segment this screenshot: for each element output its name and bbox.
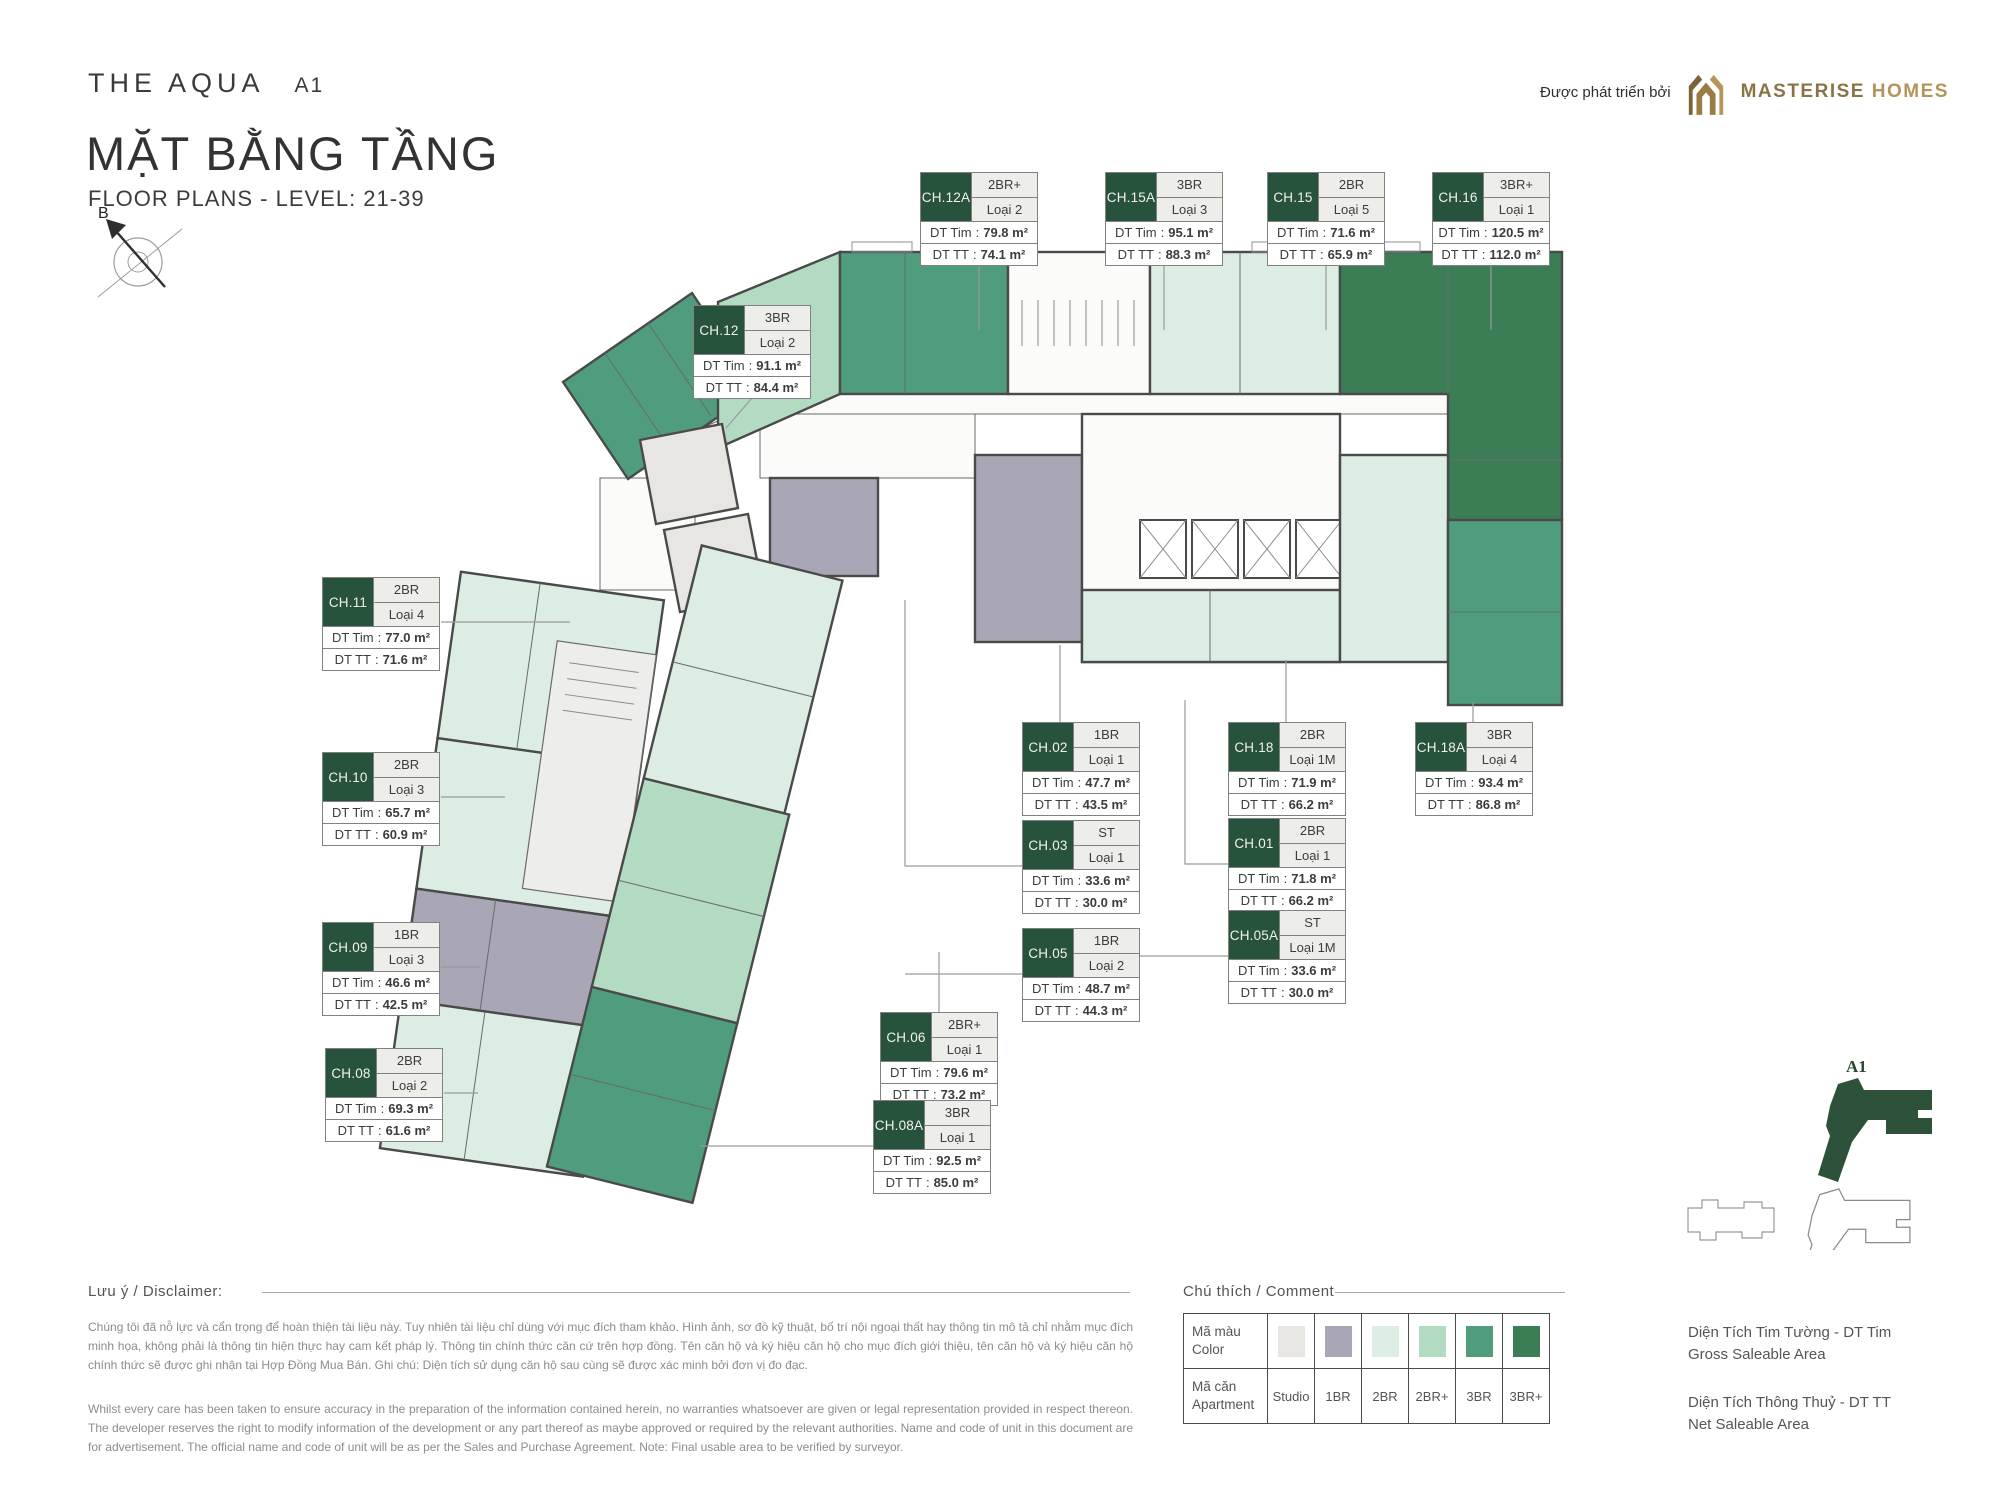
unit-variant: Loại 1 xyxy=(925,1126,990,1150)
unit-variant: Loại 2 xyxy=(1074,954,1139,978)
unit-dt-tim: 71.8 m² xyxy=(1291,871,1336,886)
unit-type: ST xyxy=(1280,911,1345,936)
dt-tim-label: DT Tim xyxy=(332,630,374,645)
key-plan-other-tower-shape xyxy=(1800,1189,1909,1250)
unit-code: CH.03 xyxy=(1023,821,1073,869)
unit-label-ch08a: CH.08A 3BR Loại 1 DT Tim:92.5 m² DT TT:8… xyxy=(873,1100,991,1194)
legend-type-1br: 1BR xyxy=(1315,1369,1362,1424)
unit-dt-tim: 92.5 m² xyxy=(936,1153,981,1168)
unit-dt-tt: 30.0 m² xyxy=(1289,985,1334,1000)
legend-swatch-3br xyxy=(1466,1326,1493,1357)
unit-dt-tim: 79.8 m² xyxy=(983,225,1028,240)
unit-variant: Loại 2 xyxy=(377,1074,442,1098)
plan-unit-ch03 xyxy=(640,424,738,524)
unit-type: 3BR xyxy=(1467,723,1532,748)
key-plan-neighbor-building xyxy=(1688,1200,1774,1240)
unit-label-ch03: CH.03 ST Loại 1 DT Tim:33.6 m² DT TT:30.… xyxy=(1022,820,1140,914)
unit-variant: Loại 1M xyxy=(1280,748,1345,772)
unit-dt-tim: 65.7 m² xyxy=(385,805,430,820)
unit-dt-tt: 66.2 m² xyxy=(1289,797,1334,812)
unit-variant: Loại 4 xyxy=(1467,748,1532,772)
plan-unit-ch01 xyxy=(1082,590,1340,662)
unit-type: 2BR xyxy=(1280,819,1345,844)
unit-variant: Loại 1 xyxy=(932,1038,997,1062)
plan-center-band xyxy=(640,414,1562,705)
plan-unit-ch02 xyxy=(975,455,1082,642)
key-plan-a1-label: A1 xyxy=(1846,1057,1867,1076)
project-name-line: THE AQUAA1 xyxy=(88,68,324,99)
legend-note-gross: Diện Tích Tim Tường - DT Tim Gross Salea… xyxy=(1688,1322,1978,1366)
unit-dt-tt: 71.6 m² xyxy=(383,652,428,667)
unit-dt-tim: 48.7 m² xyxy=(1085,981,1130,996)
unit-type: 2BR xyxy=(1280,723,1345,748)
dt-tim-label: DT Tim xyxy=(1032,873,1074,888)
unit-variant: Loại 2 xyxy=(972,198,1037,222)
dt-tim-label: DT Tim xyxy=(890,1065,932,1080)
unit-type: 2BR+ xyxy=(932,1013,997,1038)
unit-type: 2BR xyxy=(377,1049,442,1074)
unit-label-ch10: CH.10 2BR Loại 3 DT Tim:65.7 m² DT TT:60… xyxy=(322,752,440,846)
unit-code: CH.18A xyxy=(1416,723,1466,771)
unit-dt-tt: 66.2 m² xyxy=(1289,893,1334,908)
dt-tim-label: DT Tim xyxy=(1032,775,1074,790)
legend-swatch-3br-plus xyxy=(1513,1326,1540,1357)
unit-dt-tim: 77.0 m² xyxy=(385,630,430,645)
unit-type: 2BR xyxy=(374,578,439,603)
legend-type-studio: Studio xyxy=(1268,1369,1315,1424)
plan-unit-ch05a xyxy=(664,514,764,612)
dt-tim-label: DT Tim xyxy=(1277,225,1319,240)
unit-dt-tim: 120.5 m² xyxy=(1492,225,1544,240)
dt-tt-label: DT TT xyxy=(1241,797,1277,812)
unit-dt-tt: 86.8 m² xyxy=(1476,797,1521,812)
unit-dt-tim: 71.6 m² xyxy=(1330,225,1375,240)
unit-dt-tt: 61.6 m² xyxy=(386,1123,431,1138)
legend-apt-label-vi: Mã căn xyxy=(1192,1379,1236,1394)
unit-label-ch05a: CH.05A ST Loại 1M DT Tim:33.6 m² DT TT:3… xyxy=(1228,910,1346,1004)
legend-swatch-1br xyxy=(1325,1326,1352,1357)
legend-rule xyxy=(1335,1292,1565,1293)
dt-tim-label: DT Tim xyxy=(332,805,374,820)
compass-north-label: B xyxy=(98,205,109,223)
unit-dt-tim: 46.6 m² xyxy=(385,975,430,990)
dt-tt-label: DT TT xyxy=(1118,247,1154,262)
disclaimer-en: Whilst every care has been taken to ensu… xyxy=(88,1400,1133,1458)
unit-dt-tim: 79.6 m² xyxy=(943,1065,988,1080)
legend-type-2br: 2BR xyxy=(1362,1369,1409,1424)
unit-code: CH.15A xyxy=(1106,173,1156,221)
plan-unit-ch15a xyxy=(840,252,1008,394)
unit-code: CH.12A xyxy=(921,173,971,221)
dt-tim-label: DT Tim xyxy=(1115,225,1157,240)
key-plan: A1 xyxy=(1680,1050,1980,1250)
unit-dt-tim: 33.6 m² xyxy=(1085,873,1130,888)
unit-variant: Loại 3 xyxy=(1157,198,1222,222)
unit-variant: Loại 3 xyxy=(374,948,439,972)
legend-swatch-2br xyxy=(1372,1326,1399,1357)
unit-code: CH.05A xyxy=(1229,911,1279,959)
unit-type: 3BR xyxy=(1157,173,1222,198)
plan-lobby xyxy=(1082,414,1340,662)
plan-core-stairs xyxy=(1008,252,1150,394)
dt-tt-label: DT TT xyxy=(1035,895,1071,910)
page-title: MẶT BẰNG TẦNG xyxy=(86,126,499,181)
dt-tt-label: DT TT xyxy=(1241,893,1277,908)
legend-table: Mã màu Color Mã căn Apartment Studio 1BR… xyxy=(1183,1313,1550,1424)
disclaimer-vi: Chúng tôi đã nỗ lực và cẩn trọng để hoàn… xyxy=(88,1318,1133,1376)
unit-label-ch09: CH.09 1BR Loại 3 DT Tim:46.6 m² DT TT:42… xyxy=(322,922,440,1016)
unit-type: 3BR+ xyxy=(1484,173,1549,198)
dt-tim-label: DT Tim xyxy=(1238,963,1280,978)
unit-code: CH.11 xyxy=(323,578,373,626)
legend-note-gross-en: Gross Saleable Area xyxy=(1688,1344,1978,1366)
unit-type: 3BR xyxy=(925,1101,990,1126)
dt-tim-label: DT Tim xyxy=(335,1101,377,1116)
dt-tt-label: DT TT xyxy=(706,380,742,395)
unit-code: CH.12 xyxy=(694,306,744,354)
dt-tim-label: DT Tim xyxy=(703,358,745,373)
unit-label-ch06: CH.06 2BR+ Loại 1 DT Tim:79.6 m² DT TT:7… xyxy=(880,1012,998,1106)
unit-code: CH.08A xyxy=(874,1101,924,1149)
unit-label-ch12a: CH.12A 2BR+ Loại 2 DT Tim:79.8 m² DT TT:… xyxy=(920,172,1038,266)
unit-dt-tim: 33.6 m² xyxy=(1291,963,1336,978)
dt-tim-label: DT Tim xyxy=(1425,775,1467,790)
unit-type: 1BR xyxy=(1074,929,1139,954)
unit-type: 2BR+ xyxy=(972,173,1037,198)
masterise-logo-icon xyxy=(1685,69,1727,115)
unit-dt-tt: 42.5 m² xyxy=(383,997,428,1012)
developer-name: MASTERISE HOMES xyxy=(1741,81,1949,103)
dt-tt-label: DT TT xyxy=(1428,797,1464,812)
unit-variant: Loại 2 xyxy=(745,331,810,355)
plan-unit-ch08a xyxy=(547,987,737,1203)
unit-variant: Loại 1 xyxy=(1484,198,1549,222)
dt-tim-label: DT Tim xyxy=(1032,981,1074,996)
unit-dt-tt: 84.4 m² xyxy=(754,380,799,395)
plan-unit-ch18a xyxy=(1448,520,1562,705)
legend-note-net-en: Net Saleable Area xyxy=(1688,1414,1978,1436)
unit-code: CH.06 xyxy=(881,1013,931,1061)
unit-label-ch08: CH.08 2BR Loại 2 DT Tim:69.3 m² DT TT:61… xyxy=(325,1048,443,1142)
dt-tt-label: DT TT xyxy=(933,247,969,262)
unit-dt-tt: 74.1 m² xyxy=(981,247,1026,262)
unit-code: CH.01 xyxy=(1229,819,1279,867)
unit-label-ch12: CH.12 3BR Loại 2 DT Tim:91.1 m² DT TT:84… xyxy=(693,305,811,399)
dt-tt-label: DT TT xyxy=(335,827,371,842)
tower-code: A1 xyxy=(295,74,325,97)
dt-tim-label: DT Tim xyxy=(883,1153,925,1168)
legend-type-row: Mã căn Apartment Studio 1BR 2BR 2BR+ 3BR… xyxy=(1184,1369,1550,1424)
unit-label-ch18: CH.18 2BR Loại 1M DT Tim:71.9 m² DT TT:6… xyxy=(1228,722,1346,816)
unit-variant: Loại 1 xyxy=(1074,748,1139,772)
unit-dt-tt: 112.0 m² xyxy=(1489,247,1540,262)
unit-code: CH.08 xyxy=(326,1049,376,1097)
dt-tt-label: DT TT xyxy=(1441,247,1477,262)
unit-dt-tt: 30.0 m² xyxy=(1083,895,1128,910)
unit-label-ch15: CH.15 2BR Loại 5 DT Tim:71.6 m² DT TT:65… xyxy=(1267,172,1385,266)
unit-variant: Loại 3 xyxy=(374,778,439,802)
dt-tim-label: DT Tim xyxy=(1238,871,1280,886)
developer-prefix: Được phát triển bởi xyxy=(1540,84,1671,101)
legend-type-3br-plus: 3BR+ xyxy=(1503,1369,1550,1424)
plan-unit-ch06 xyxy=(592,778,790,1023)
compass: B xyxy=(90,205,200,305)
legend-note-gross-vi: Diện Tích Tim Tường - DT Tim xyxy=(1688,1322,1978,1344)
unit-code: CH.02 xyxy=(1023,723,1073,771)
unit-type: 2BR xyxy=(1319,173,1384,198)
plan-unit-ch05 xyxy=(770,478,878,576)
legend-heading: Chú thích / Comment xyxy=(1183,1283,1334,1300)
plan-unit-ch18 xyxy=(1340,455,1448,662)
legend-color-label-en: Color xyxy=(1192,1342,1224,1357)
plan-unit-ch11 xyxy=(438,572,664,767)
plan-top-wing xyxy=(718,242,1562,520)
dt-tt-label: DT TT xyxy=(1035,797,1071,812)
disclaimer-heading: Lưu ý / Disclaimer: xyxy=(88,1283,223,1300)
dt-tt-label: DT TT xyxy=(1241,985,1277,1000)
plan-middle-upper xyxy=(644,545,843,813)
unit-label-ch01: CH.01 2BR Loại 1 DT Tim:71.8 m² DT TT:66… xyxy=(1228,818,1346,912)
unit-dt-tim: 47.7 m² xyxy=(1085,775,1130,790)
unit-dt-tt: 44.3 m² xyxy=(1083,1003,1128,1018)
unit-label-ch16: CH.16 3BR+ Loại 1 DT Tim:120.5 m² DT TT:… xyxy=(1432,172,1550,266)
key-plan-drawing: A1 xyxy=(1680,1050,1980,1250)
unit-code: CH.18 xyxy=(1229,723,1279,771)
legend-color-label-vi: Mã màu xyxy=(1192,1324,1241,1339)
unit-label-ch15a: CH.15A 3BR Loại 3 DT Tim:95.1 m² DT TT:8… xyxy=(1105,172,1223,266)
dt-tt-label: DT TT xyxy=(1035,1003,1071,1018)
unit-dt-tim: 91.1 m² xyxy=(756,358,801,373)
legend-swatch-studio xyxy=(1278,1326,1305,1357)
legend-apt-label-en: Apartment xyxy=(1192,1397,1254,1412)
key-plan-a1-shape xyxy=(1818,1078,1932,1182)
unit-dt-tim: 71.9 m² xyxy=(1291,775,1336,790)
dt-tim-label: DT Tim xyxy=(1438,225,1480,240)
unit-dt-tim: 95.1 m² xyxy=(1168,225,1213,240)
legend-note-net: Diện Tích Thông Thuỷ - DT TT Net Saleabl… xyxy=(1688,1392,1978,1436)
unit-type: ST xyxy=(1074,821,1139,846)
unit-code: CH.16 xyxy=(1433,173,1483,221)
legend-note-net-vi: Diện Tích Thông Thuỷ - DT TT xyxy=(1688,1392,1978,1414)
unit-dt-tt: 65.9 m² xyxy=(1328,247,1373,262)
unit-code: CH.10 xyxy=(323,753,373,801)
legend-type-3br: 3BR xyxy=(1456,1369,1503,1424)
dt-tim-label: DT Tim xyxy=(1238,775,1280,790)
unit-code: CH.09 xyxy=(323,923,373,971)
dt-tim-label: DT Tim xyxy=(332,975,374,990)
dt-tt-label: DT TT xyxy=(1280,247,1316,262)
dt-tt-label: DT TT xyxy=(335,997,371,1012)
unit-dt-tt: 43.5 m² xyxy=(1083,797,1128,812)
legend-type-2br-plus: 2BR+ xyxy=(1409,1369,1456,1424)
unit-dt-tim: 93.4 m² xyxy=(1478,775,1523,790)
elevator-core xyxy=(1140,520,1342,578)
unit-variant: Loại 1 xyxy=(1074,846,1139,870)
unit-type: 2BR xyxy=(374,753,439,778)
unit-label-ch02: CH.02 1BR Loại 1 DT Tim:47.7 m² DT TT:43… xyxy=(1022,722,1140,816)
unit-label-ch05: CH.05 1BR Loại 2 DT Tim:48.7 m² DT TT:44… xyxy=(1022,928,1140,1022)
legend-color-row: Mã màu Color xyxy=(1184,1314,1550,1369)
unit-dt-tt: 85.0 m² xyxy=(934,1175,979,1190)
unit-dt-tt: 60.9 m² xyxy=(383,827,428,842)
unit-variant: Loại 4 xyxy=(374,603,439,627)
dt-tt-label: DT TT xyxy=(338,1123,374,1138)
unit-code: CH.05 xyxy=(1023,929,1073,977)
unit-type: 1BR xyxy=(1074,723,1139,748)
unit-variant: Loại 1M xyxy=(1280,936,1345,960)
floor-plan-page: THE AQUAA1 MẶT BẰNG TẦNG FLOOR PLANS - L… xyxy=(0,0,2000,1500)
plan-left-core xyxy=(522,641,656,902)
unit-variant: Loại 1 xyxy=(1280,844,1345,868)
unit-label-ch18a: CH.18A 3BR Loại 4 DT Tim:93.4 m² DT TT:8… xyxy=(1415,722,1533,816)
unit-dt-tim: 69.3 m² xyxy=(388,1101,433,1116)
legend-swatch-2br-plus xyxy=(1419,1326,1446,1357)
dt-tt-label: DT TT xyxy=(335,652,371,667)
developer-block: Được phát triển bởi MASTERISE HOMES xyxy=(1540,66,1980,118)
unit-variant: Loại 5 xyxy=(1319,198,1384,222)
unit-type: 1BR xyxy=(374,923,439,948)
plan-unit-ch10 xyxy=(416,738,640,917)
plan-unit-ch15 xyxy=(1150,252,1340,394)
plan-unit-ch16 xyxy=(1340,252,1562,520)
unit-label-ch11: CH.11 2BR Loại 4 DT Tim:77.0 m² DT TT:71… xyxy=(322,577,440,671)
dt-tim-label: DT Tim xyxy=(930,225,972,240)
disclaimer-rule xyxy=(262,1292,1130,1293)
dt-tt-label: DT TT xyxy=(886,1175,922,1190)
project-name: THE AQUA xyxy=(88,68,265,98)
unit-dt-tt: 88.3 m² xyxy=(1166,247,1211,262)
plan-middle-wing xyxy=(547,545,847,1202)
unit-code: CH.15 xyxy=(1268,173,1318,221)
unit-type: 3BR xyxy=(745,306,810,331)
